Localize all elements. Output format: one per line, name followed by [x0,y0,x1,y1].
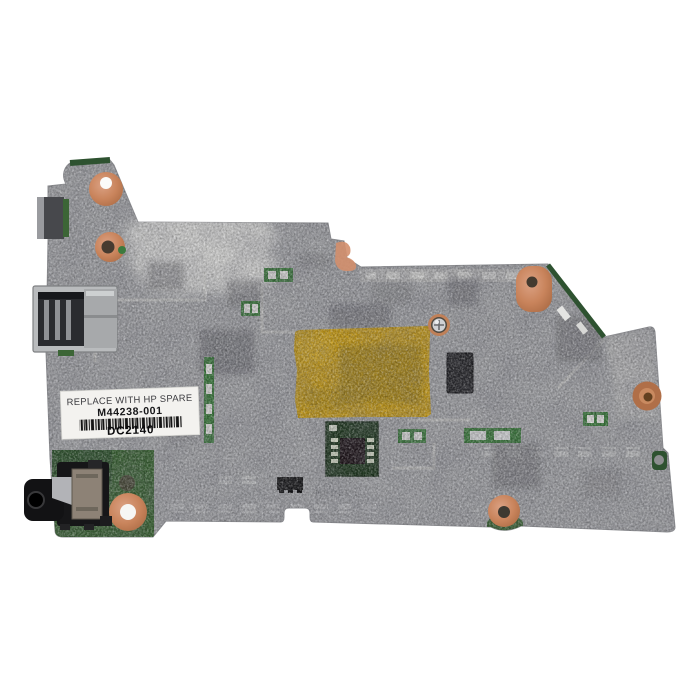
motherboard-photo: MODEL: [0,0,700,700]
screw-hole-bottom-center [488,495,520,527]
product-photo: MODEL: [0,0,700,700]
label-part-number: M44238-001 [97,405,163,419]
screw-hole-top-right [516,266,552,312]
screw-hole-right [633,382,662,411]
usb-port [33,286,117,356]
video-connector [37,197,69,239]
screw-hole-bottom-left [109,493,147,531]
service-label: REPLACE WITH HP SPARE M44238-001 DC2140 [60,387,200,440]
screw [428,314,450,336]
edge-castellation [652,451,667,470]
screw-hole-top-left [89,172,123,206]
label-date-code: DC2140 [107,423,155,438]
audio-jack-hole [28,492,44,508]
